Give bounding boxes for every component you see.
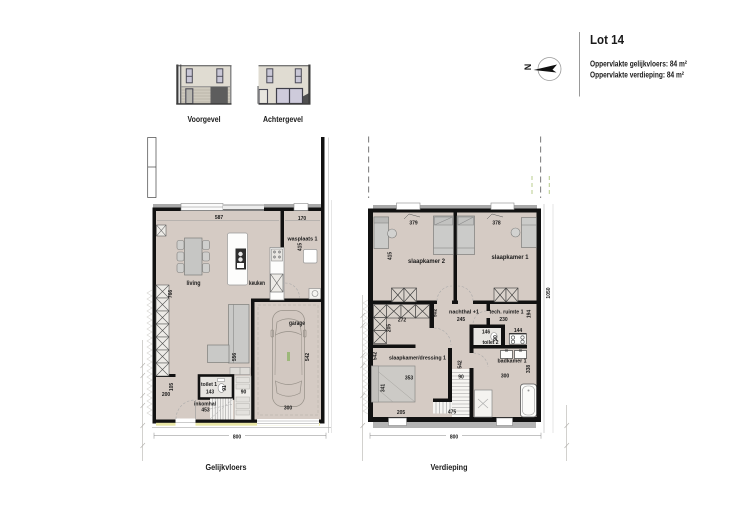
- svg-text:90: 90: [458, 375, 464, 381]
- svg-text:453: 453: [201, 408, 210, 414]
- svg-text:205: 205: [387, 324, 393, 333]
- svg-text:338: 338: [526, 365, 532, 374]
- svg-text:Gelijkvloers: Gelijkvloers: [206, 463, 247, 472]
- svg-text:slaapkamer 2: slaapkamer 2: [408, 259, 446, 265]
- svg-text:587: 587: [215, 215, 224, 221]
- svg-text:170: 170: [298, 216, 307, 222]
- svg-text:nachthal +1: nachthal +1: [449, 310, 480, 316]
- svg-text:toilet 2: toilet 2: [483, 340, 499, 346]
- svg-text:272: 272: [398, 318, 407, 324]
- svg-text:800: 800: [233, 435, 242, 441]
- svg-text:90: 90: [241, 390, 247, 396]
- svg-text:tech. ruimte 1: tech. ruimte 1: [490, 310, 525, 316]
- svg-text:105: 105: [169, 383, 175, 392]
- svg-text:800: 800: [450, 435, 459, 441]
- svg-text:91: 91: [222, 385, 228, 391]
- svg-text:378: 378: [492, 221, 501, 227]
- svg-text:Verdieping: Verdieping: [431, 463, 468, 472]
- svg-text:Lot 14: Lot 14: [590, 32, 625, 47]
- svg-text:502: 502: [433, 309, 439, 318]
- svg-text:200: 200: [162, 392, 171, 398]
- svg-text:144: 144: [514, 328, 523, 334]
- svg-text:Oppervlakte gelijkvloers: 84 m: Oppervlakte gelijkvloers: 84 m²: [590, 59, 687, 69]
- svg-text:766: 766: [168, 290, 174, 299]
- svg-text:garage: garage: [289, 321, 306, 327]
- svg-text:keuken: keuken: [249, 281, 265, 287]
- svg-text:230: 230: [499, 317, 508, 323]
- svg-text:542: 542: [458, 360, 464, 369]
- svg-text:1050: 1050: [546, 287, 552, 298]
- svg-text:N: N: [523, 64, 533, 71]
- svg-text:slaapkamer/dressing 1: slaapkamer/dressing 1: [389, 356, 447, 362]
- svg-text:245: 245: [457, 317, 466, 323]
- svg-text:146: 146: [482, 330, 491, 336]
- svg-text:205: 205: [397, 410, 406, 416]
- svg-text:300: 300: [501, 374, 510, 380]
- svg-text:143: 143: [206, 390, 215, 396]
- svg-text:badkamer 1: badkamer 1: [498, 359, 528, 365]
- svg-text:toilet 1: toilet 1: [201, 382, 217, 388]
- svg-text:living: living: [187, 281, 201, 287]
- svg-text:Voorgevel: Voorgevel: [188, 115, 221, 124]
- svg-text:Achtergevel: Achtergevel: [263, 115, 303, 124]
- svg-text:415: 415: [298, 243, 304, 252]
- svg-text:542: 542: [305, 353, 311, 362]
- svg-text:475: 475: [448, 410, 457, 416]
- svg-text:slaapkamer 1: slaapkamer 1: [492, 255, 530, 261]
- svg-text:341: 341: [381, 384, 387, 393]
- svg-text:353: 353: [405, 376, 414, 382]
- svg-text:379: 379: [409, 221, 418, 227]
- svg-text:194: 194: [527, 310, 533, 319]
- svg-text:Oppervlakte verdieping: 84 m²: Oppervlakte verdieping: 84 m²: [590, 70, 684, 80]
- svg-text:556: 556: [232, 353, 238, 362]
- svg-text:415: 415: [388, 252, 394, 261]
- svg-text:542: 542: [373, 352, 379, 361]
- svg-text:wasplaats 1: wasplaats 1: [287, 237, 319, 243]
- svg-text:300: 300: [284, 406, 293, 412]
